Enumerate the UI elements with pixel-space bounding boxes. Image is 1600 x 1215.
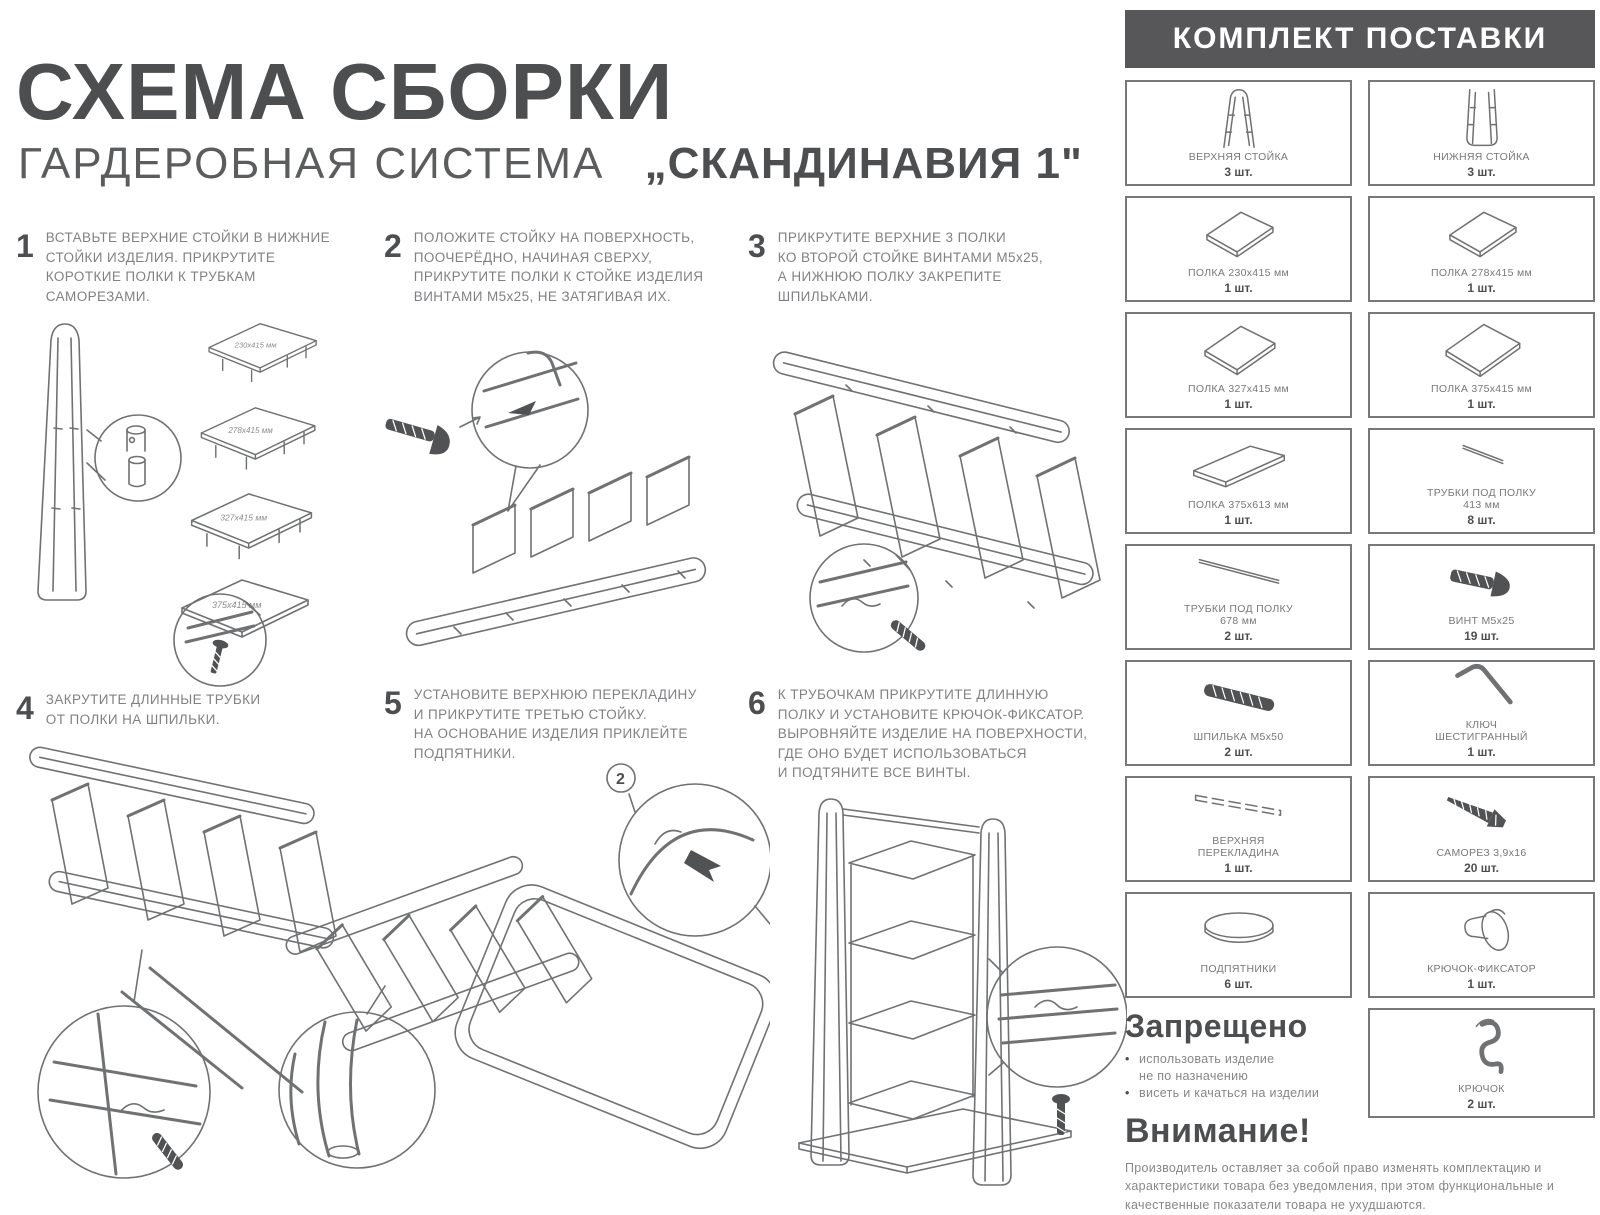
- forbidden-item: висеть и качаться на изделии: [1125, 1085, 1352, 1102]
- step-4: 4 ЗАКРУТИТЕ ДЛИННЫЕ ТРУБКИ ОТ ПОЛКИ НА Ш…: [16, 690, 366, 729]
- forbidden-title: Запрещено: [1125, 1008, 1352, 1045]
- stand-assembly-graphic: [284, 845, 597, 1086]
- step-4-text: ЗАКРУТИТЕ ДЛИННЫЕ ТРУБКИ ОТ ПОЛКИ НА ШПИ…: [46, 690, 261, 729]
- attention-text: Производитель оставляет за собой право и…: [1125, 1159, 1595, 1215]
- divider-shelves-graphic: [473, 457, 689, 573]
- kit-item-tube-long: ТРУБКИ ПОД ПОЛКУ 678 мм 2 шт.: [1125, 544, 1352, 650]
- stud-icon: [1131, 665, 1346, 731]
- stand-rail-graphic: [404, 556, 708, 648]
- hook-lock-icon: [1374, 897, 1589, 963]
- step-5-diagram: 2: [225, 748, 770, 1200]
- divider-shelves-graphic: [795, 396, 1100, 598]
- step-1-diagram: 230х415 мм 278х415 мм 327х415 мм 375х415…: [8, 308, 372, 690]
- shelf-icon: [1131, 201, 1346, 267]
- step-2-number: 2: [384, 230, 402, 262]
- shelf-icon: [1131, 317, 1346, 383]
- crossbar-icon: [1131, 769, 1346, 835]
- kit-item-hook: КРЮЧОК 2 шт.: [1368, 1008, 1595, 1118]
- step-2-text: ПОЛОЖИТЕ СТОЙКУ НА ПОВЕРХНОСТЬ, ПООЧЕРЁД…: [414, 228, 704, 306]
- screw-icon: [1374, 781, 1589, 847]
- kit-item-shelf-278: ПОЛКА 278х415 мм 1 шт.: [1368, 196, 1595, 302]
- step-4-number: 4: [16, 692, 34, 724]
- bolt-icon: [1374, 549, 1589, 615]
- kit-item-shelf-230: ПОЛКА 230х415 мм 1 шт.: [1125, 196, 1352, 302]
- back-rail-graphic: [771, 350, 1071, 445]
- step-6-number: 6: [748, 687, 766, 719]
- step-3-diagram: [746, 330, 1118, 665]
- step-3-number: 3: [748, 230, 766, 262]
- shelf-230-graphic: 230х415 мм: [209, 324, 316, 382]
- step-1: 1 ВСТАВЬТЕ ВЕРХНИЕ СТОЙКИ В НИЖНИЕ СТОЙК…: [16, 228, 372, 306]
- stud-detail-graphic: [889, 618, 928, 653]
- hook-icon: [1374, 1013, 1589, 1083]
- kit-item-crossbar: ВЕРХНЯЯ ПЕРЕКЛАДИНА 1 шт.: [1125, 776, 1352, 882]
- kit-item-hook-lock: КРЮЧОК-ФИКСАТОР 1 шт.: [1368, 892, 1595, 998]
- page-subtitle: ГАРДЕРОБНАЯ СИСТЕМА „СКАНДИНАВИЯ 1": [18, 142, 1083, 186]
- tube-short-icon: [1374, 421, 1589, 487]
- lower-stand-icon: [1374, 85, 1589, 151]
- step5-callout-label: 2: [616, 771, 625, 788]
- kit-item-screw: САМОРЕЗ 3,9х16 20 шт.: [1368, 776, 1595, 882]
- kit-header: КОМПЛЕКТ ПОСТАВКИ: [1125, 10, 1595, 68]
- forbidden-item: использовать изделие не по назначению: [1125, 1051, 1352, 1085]
- step-6-diagram: [735, 755, 1127, 1200]
- step-1-text: ВСТАВЬТЕ ВЕРХНИЕ СТОЙКИ В НИЖНИЕ СТОЙКИ …: [46, 228, 330, 306]
- kit-bottom-row: Запрещено использовать изделие не по наз…: [1125, 1008, 1595, 1151]
- foot-pad-icon: [1131, 897, 1346, 963]
- svg-text:327х415 мм: 327х415 мм: [220, 513, 267, 523]
- kit-item-shelf-375: ПОЛКА 375х415 мм 1 шт.: [1368, 312, 1595, 418]
- product-name: „СКАНДИНАВИЯ 1": [645, 139, 1083, 188]
- screw-detail-graphic: [205, 638, 229, 675]
- kit-header-label: КОМПЛЕКТ ПОСТАВКИ: [1173, 22, 1547, 56]
- kit-item-foot-pads: ПОДПЯТНИКИ 6 шт.: [1125, 892, 1352, 998]
- forbidden-list: использовать изделие не по назначению ви…: [1125, 1051, 1352, 1102]
- kit-item-upper-stand: ВЕРХНЯЯ СТОЙКА 3 шт.: [1125, 80, 1352, 186]
- step-2: 2 ПОЛОЖИТЕ СТОЙКУ НА ПОВЕРХНОСТЬ, ПООЧЕР…: [384, 228, 736, 306]
- kit-panel: КОМПЛЕКТ ПОСТАВКИ ВЕРХНЯЯ СТОЙКА 3 шт.: [1125, 10, 1595, 1215]
- step-3: 3 ПРИКРУТИТЕ ВЕРХНИЕ 3 ПОЛКИ КО ВТОРОЙ С…: [748, 228, 1118, 306]
- kit-grid: ВЕРХНЯЯ СТОЙКА 3 шт. НИЖНЯЯ СТОЙКА 3 шт.: [1125, 80, 1595, 998]
- side-frame-flat-graphic: [447, 877, 770, 1157]
- step-1-number: 1: [16, 230, 34, 262]
- kit-item-hex-key: КЛЮЧ ШЕСТИГРАННЫЙ 1 шт.: [1368, 660, 1595, 766]
- kit-item-tube-short: ТРУБКИ ПОД ПОЛКУ 413 мм 8 шт.: [1368, 428, 1595, 534]
- shelf-278-graphic: 278х415 мм: [201, 408, 314, 469]
- bolt-graphic: [381, 411, 454, 458]
- svg-text:278х415 мм: 278х415 мм: [227, 426, 273, 435]
- upper-stand-icon: [1131, 85, 1346, 151]
- shelf-icon: [1374, 201, 1589, 267]
- kit-item-stud: ШПИЛЬКА М5х50 2 шт.: [1125, 660, 1352, 766]
- step-3-text: ПРИКРУТИТЕ ВЕРХНИЕ 3 ПОЛКИ КО ВТОРОЙ СТО…: [778, 228, 1043, 306]
- long-shelf-icon: [1131, 433, 1346, 499]
- step-5-number: 5: [384, 687, 402, 719]
- kit-item-lower-stand: НИЖНЯЯ СТОЙКА 3 шт.: [1368, 80, 1595, 186]
- screw-detail-graphic: [1052, 1094, 1070, 1135]
- warnings-block: Запрещено использовать изделие не по наз…: [1125, 1008, 1352, 1151]
- shelf-icon: [1374, 317, 1589, 383]
- kit-item-bolt: ВИНТ М5х25 19 шт.: [1368, 544, 1595, 650]
- shelf-327-graphic: 327х415 мм: [192, 494, 312, 559]
- hex-key-icon: [1374, 653, 1589, 719]
- svg-text:230х415 мм: 230х415 мм: [234, 341, 278, 350]
- subtitle-text: ГАРДЕРОБНАЯ СИСТЕМА: [18, 139, 604, 188]
- tube-long-icon: [1131, 537, 1346, 603]
- step-2-diagram: [378, 315, 734, 675]
- assembly-sheet: СХЕМА СБОРКИ ГАРДЕРОБНАЯ СИСТЕМА „СКАНДИ…: [0, 0, 1600, 1200]
- attention-title: Внимание!: [1125, 1112, 1352, 1151]
- kit-item-shelf-327: ПОЛКА 327х415 мм 1 шт.: [1125, 312, 1352, 418]
- page-title: СХЕМА СБОРКИ: [16, 52, 673, 132]
- kit-item-long-shelf: ПОЛКА 375х613 мм 1 шт.: [1125, 428, 1352, 534]
